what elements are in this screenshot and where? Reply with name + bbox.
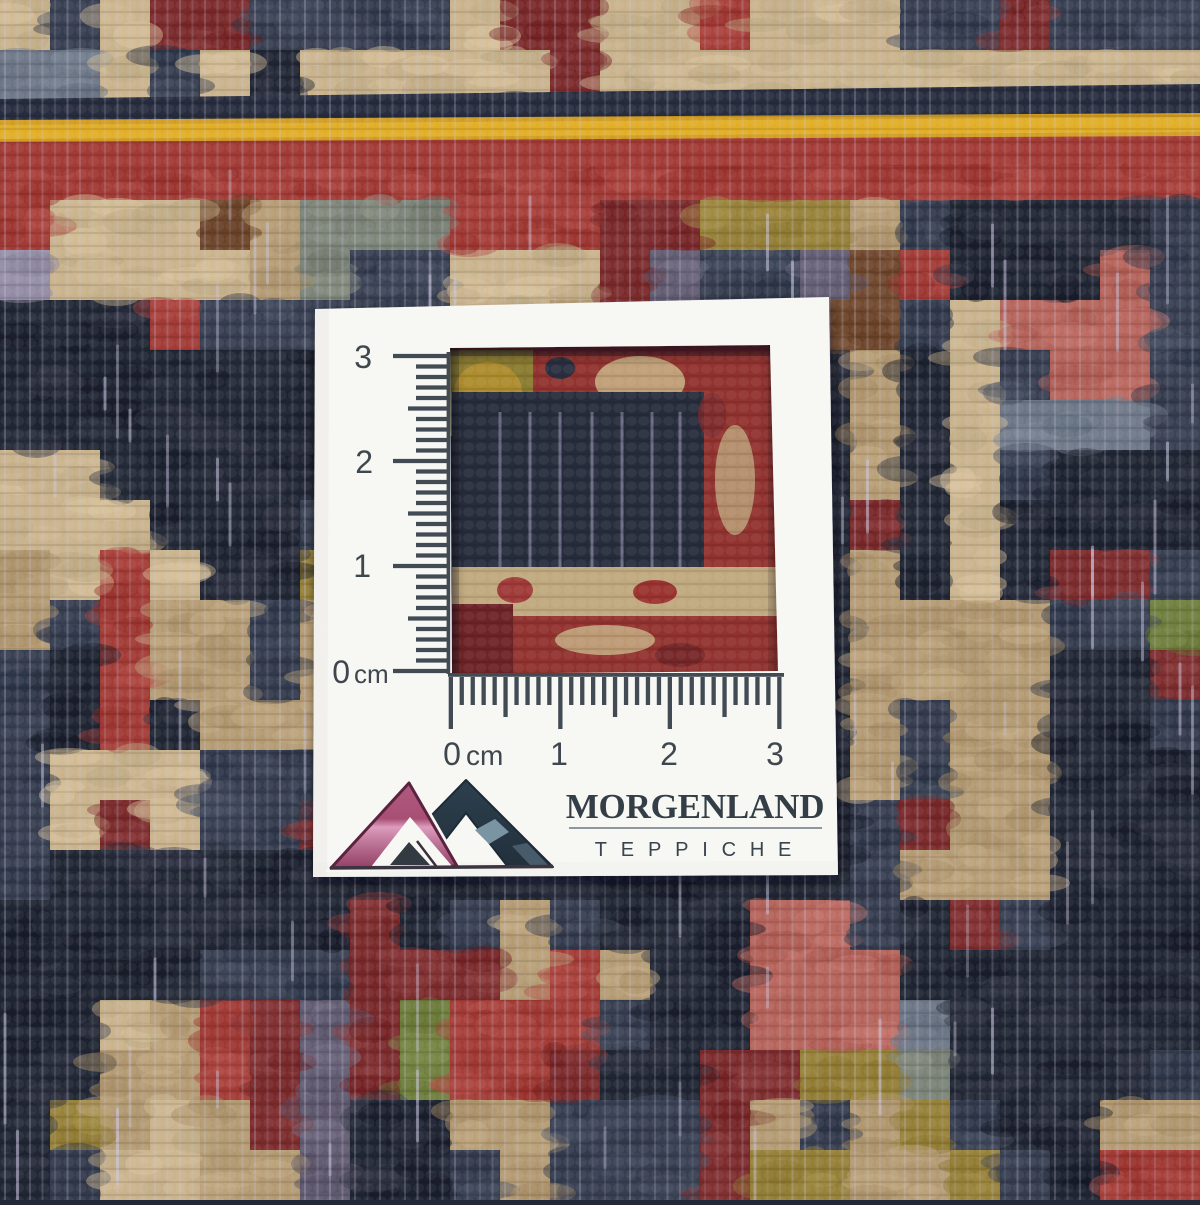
svg-text:2: 2 [660,736,678,772]
svg-text:1: 1 [550,736,568,772]
svg-text:MORGENLAND: MORGENLAND [566,787,825,826]
svg-text:TEPPICHE: TEPPICHE [595,839,805,861]
svg-text:cm: cm [466,740,503,771]
svg-text:0: 0 [332,654,350,690]
svg-text:2: 2 [355,444,373,480]
svg-text:3: 3 [766,736,784,772]
svg-text:3: 3 [354,339,372,375]
svg-text:0: 0 [443,736,461,772]
svg-text:cm: cm [354,659,389,689]
svg-text:1: 1 [353,548,371,584]
